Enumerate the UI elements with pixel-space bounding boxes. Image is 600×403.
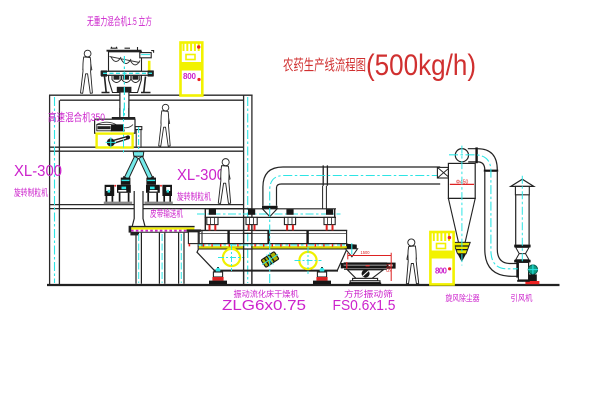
svg-text:引风机: 引风机 [511, 293, 533, 303]
svg-text:800: 800 [183, 72, 197, 81]
svg-text:(500kg/h): (500kg/h) [366, 49, 476, 82]
svg-text:旋风除尘器: 旋风除尘器 [446, 293, 480, 303]
svg-text:XL-300: XL-300 [177, 167, 225, 184]
svg-text:500: 500 [387, 264, 393, 272]
svg-text:无重力混合机1.5 立方: 无重力混合机1.5 立方 [87, 14, 152, 28]
svg-text:XL-300: XL-300 [14, 163, 62, 180]
svg-text:旋转制粒机: 旋转制粒机 [14, 187, 48, 199]
svg-text:1500: 1500 [361, 250, 370, 255]
svg-text:皮带输送机: 皮带输送机 [150, 208, 183, 220]
svg-text:800: 800 [435, 267, 448, 276]
svg-text:ZLG6x0.75: ZLG6x0.75 [222, 297, 306, 314]
svg-text:农药生产线流程图: 农药生产线流程图 [283, 57, 366, 74]
svg-text:高速混合机350: 高速混合机350 [48, 110, 105, 124]
svg-text:旋转制粒机: 旋转制粒机 [177, 191, 211, 203]
svg-text:FS0.6x1.5: FS0.6x1.5 [333, 297, 396, 314]
